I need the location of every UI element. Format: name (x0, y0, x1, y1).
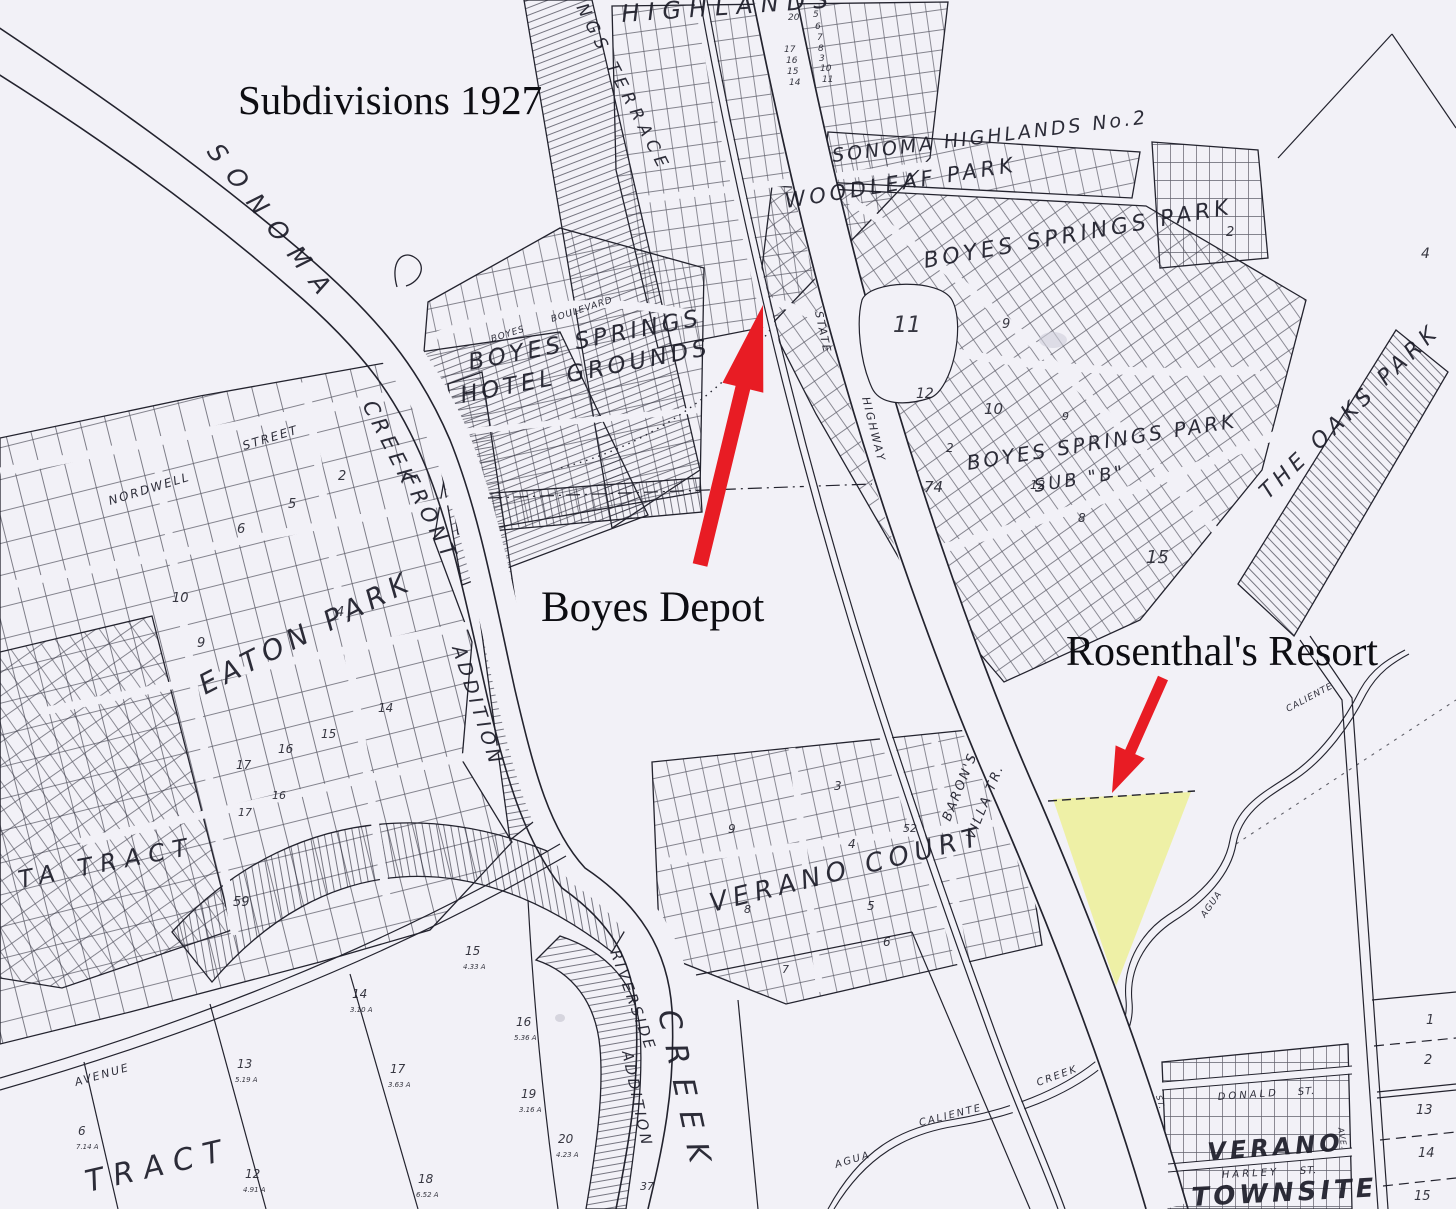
block-number: 7 (817, 33, 823, 43)
block-number: 18 (418, 1172, 434, 1186)
block-number: 14 (1418, 1146, 1435, 1161)
block-number: 6.52 A (416, 1191, 439, 1199)
block-number: 1 (1426, 1013, 1434, 1028)
block-number: 9 (728, 822, 736, 836)
block-11-oval (859, 284, 957, 403)
block-number: 2 (946, 441, 954, 455)
block-number: 4 (336, 605, 344, 620)
block-number: 4.23 A (556, 1151, 579, 1159)
block-number: 3 (834, 779, 842, 793)
block-number: 15 (1146, 547, 1169, 568)
block-number: 6 (883, 935, 891, 949)
block-number: 17 (390, 1062, 406, 1076)
block-number: 37 (640, 1180, 654, 1193)
block-number: 15 (787, 67, 799, 77)
block-number: 6 (815, 22, 821, 32)
block-number: 17 (238, 806, 252, 819)
block-number: 16 (516, 1015, 532, 1029)
scan-smudge (1039, 332, 1067, 348)
block-number: 14 (352, 987, 367, 1001)
block-number: 10 (172, 591, 189, 606)
block-number: 12 (245, 1167, 260, 1181)
block-number: 14 (378, 701, 393, 715)
block-number: 7 (782, 963, 789, 976)
block-number: 3 (819, 54, 825, 64)
block-number: 9 (197, 636, 205, 651)
block-number: 5.19 A (235, 1076, 258, 1084)
block-number: 5 (867, 899, 875, 913)
scan-smudge (555, 1014, 565, 1022)
block-number: 20 (788, 13, 800, 23)
block-number: 12 (1030, 478, 1045, 492)
block-number: 20 (558, 1132, 574, 1146)
block-number: 4 (848, 837, 856, 851)
block-number: 15 (1414, 1189, 1431, 1204)
block-number: 5 (813, 10, 819, 20)
block-number: 5 (288, 497, 296, 512)
block-number: 10 (820, 64, 832, 74)
block-number: 16 (278, 742, 294, 756)
block-number: 7.14 A (76, 1143, 99, 1151)
block-number: 4.33 A (463, 963, 486, 971)
block-number: 9 (1062, 410, 1069, 423)
block-number: 6 (78, 1124, 86, 1138)
block-number: 16 (272, 789, 286, 802)
block-number: 17 (784, 45, 796, 55)
map-label: ST. (1300, 1165, 1318, 1177)
block-number: 8 (744, 903, 751, 916)
block-number: 4.91 A (243, 1186, 266, 1194)
block-number: 3.63 A (388, 1081, 411, 1089)
block-number: 2 (1226, 225, 1234, 240)
block-number: 4 (1421, 246, 1430, 262)
block-number: 2 (1424, 1053, 1432, 1068)
block-number: 19 (521, 1087, 536, 1101)
block-number: 10 (984, 400, 1003, 418)
block-number: 3.10 A (350, 1006, 373, 1014)
block-number: 14 (789, 78, 801, 88)
block-number: 8 (818, 44, 824, 54)
block-number: 12 (916, 386, 934, 402)
block-number: 52 (903, 822, 917, 835)
block-number: 15 (465, 944, 480, 958)
map-scan-page: SONOMASPRINGS TERRACEHIGHLANDSSONOMA HIG… (0, 0, 1456, 1209)
block-number: 74 (924, 478, 943, 496)
block-number: 8 (1078, 511, 1086, 525)
rosenthals-resort-label: Rosenthal's Resort (1066, 628, 1378, 676)
map-label: ST. (1297, 1086, 1315, 1098)
block-number: 5.36 A (514, 1034, 537, 1042)
block-number: 15 (321, 727, 336, 741)
block-number: 59 (233, 895, 250, 910)
block-number: 11 (893, 313, 921, 338)
block-number: 13 (1416, 1103, 1433, 1118)
block-number: 2 (338, 469, 346, 484)
boyes-depot-label: Boyes Depot (541, 583, 764, 632)
block-number: 11 (822, 75, 833, 85)
block-number: 13 (237, 1057, 252, 1071)
block-number: 6 (237, 522, 245, 537)
block-number: 17 (236, 758, 252, 772)
block-number: 16 (786, 56, 798, 66)
block-number: 9 (1002, 317, 1010, 332)
block-number: 3.16 A (519, 1106, 542, 1114)
map-title-annotation: Subdivisions 1927 (238, 76, 542, 124)
